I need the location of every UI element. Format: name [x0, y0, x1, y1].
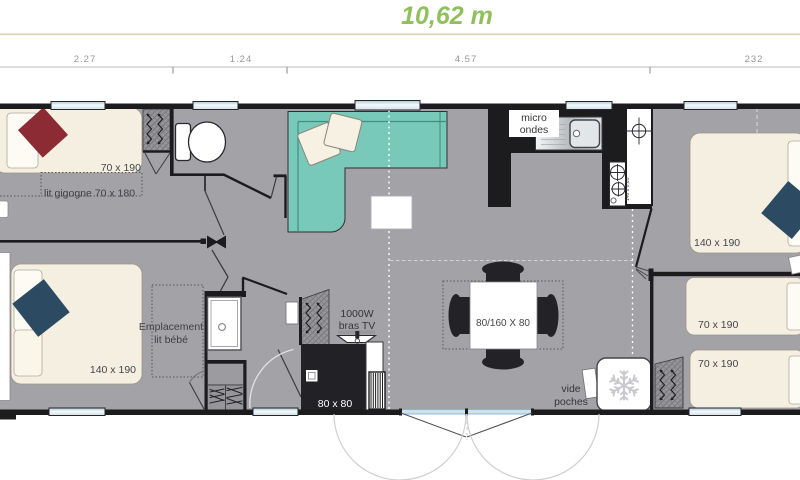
svg-text:2.27: 2.27	[74, 54, 97, 65]
svg-text:Emplacement: Emplacement	[139, 321, 203, 333]
svg-text:70 x 190: 70 x 190	[101, 162, 141, 174]
svg-text:lit gigogne 70 x 180: lit gigogne 70 x 180	[44, 188, 135, 200]
svg-text:4.57: 4.57	[455, 54, 478, 65]
svg-text:bras TV: bras TV	[339, 320, 376, 332]
svg-text:140 x 190: 140 x 190	[90, 364, 136, 376]
svg-text:140 x 0,60: 140 x 0,60	[625, 177, 631, 201]
svg-text:232: 232	[745, 54, 764, 65]
svg-text:70 x 190: 70 x 190	[698, 358, 738, 370]
svg-text:80/160 X 80: 80/160 X 80	[476, 318, 530, 329]
svg-text:lit bébé: lit bébé	[154, 334, 188, 346]
svg-text:vide: vide	[561, 383, 580, 395]
svg-text:80 x 80: 80 x 80	[318, 398, 353, 410]
svg-text:140 x 190: 140 x 190	[694, 237, 740, 249]
svg-text:1000W: 1000W	[340, 308, 373, 320]
svg-text:micro: micro	[521, 112, 547, 124]
svg-text:poches: poches	[554, 396, 588, 408]
svg-text:10,62 m: 10,62 m	[401, 2, 493, 30]
svg-text:ondes: ondes	[520, 124, 549, 136]
svg-text:1.24: 1.24	[230, 54, 253, 65]
svg-text:70 x 190: 70 x 190	[698, 319, 738, 331]
